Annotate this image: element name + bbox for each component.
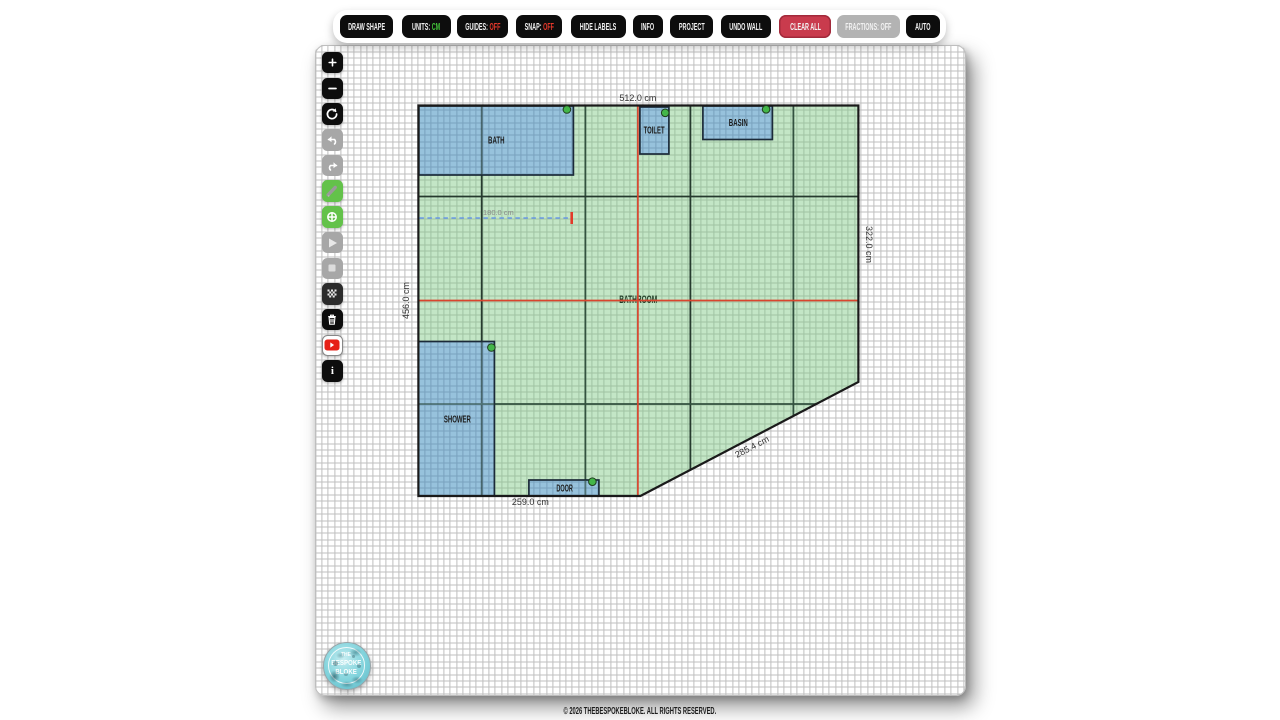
svg-text:BASIN: BASIN (728, 118, 747, 129)
svg-text:512.0 cm: 512.0 cm (619, 93, 656, 103)
svg-text:259.0 cm: 259.0 cm (512, 496, 549, 506)
svg-text:SHOWER: SHOWER (443, 414, 470, 425)
svg-text:456.0 cm: 456.0 cm (400, 282, 410, 319)
svg-text:DOOR: DOOR (556, 483, 572, 494)
svg-text:TOILET: TOILET (643, 125, 664, 136)
svg-text:180.0 cm: 180.0 cm (483, 208, 514, 217)
svg-text:322.0 cm: 322.0 cm (863, 226, 873, 263)
svg-text:BATH: BATH (488, 135, 504, 146)
